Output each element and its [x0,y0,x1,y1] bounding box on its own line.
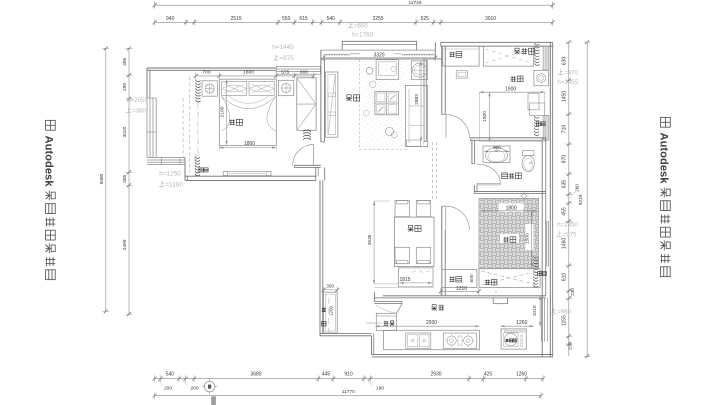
svg-text:230: 230 [570,288,575,296]
svg-text:3010: 3010 [485,16,496,22]
svg-text:1500: 1500 [525,233,531,244]
svg-text:2515: 2515 [231,16,242,22]
svg-text:1800: 1800 [243,70,254,76]
svg-text:1260: 1260 [516,320,527,326]
svg-text:=975: =975 [563,231,577,238]
svg-text:490: 490 [122,83,128,91]
svg-text:1450: 1450 [561,91,567,102]
svg-text:700: 700 [202,70,210,76]
svg-text:11746: 11746 [409,0,422,6]
svg-text:1800: 1800 [244,141,255,147]
svg-text:525: 525 [421,16,430,22]
svg-text:940: 940 [166,16,175,22]
svg-text:h=1450: h=1450 [557,222,578,229]
svg-text:2255: 2255 [372,16,383,22]
svg-text:190: 190 [376,386,384,392]
svg-text:200: 200 [190,386,198,392]
svg-text:870: 870 [561,155,567,164]
svg-text:h=1445: h=1445 [272,44,294,51]
svg-text:615: 615 [299,16,308,22]
svg-text:1260: 1260 [516,371,527,377]
svg-text:230: 230 [568,342,573,350]
svg-text:2635: 2635 [367,234,373,245]
svg-text:800: 800 [493,145,501,150]
svg-text:600: 600 [300,70,308,76]
svg-text:h=2050: h=2050 [127,97,148,104]
svg-text:1800: 1800 [506,205,517,211]
svg-text:540: 540 [166,371,175,377]
svg-text:=1160: =1160 [165,182,183,189]
svg-text:610: 610 [561,273,567,282]
svg-text:h=1250: h=1250 [159,170,181,177]
svg-text:260: 260 [574,184,579,192]
svg-text:445: 445 [322,371,331,377]
svg-text:1210: 1210 [456,286,467,292]
svg-text:2930: 2930 [426,320,437,326]
svg-text:Autodesk: Autodesk [43,136,55,188]
svg-text:1155: 1155 [561,315,567,326]
svg-text:=960: =960 [557,308,571,315]
svg-text:1200: 1200 [329,305,334,316]
svg-text:630: 630 [561,57,567,66]
svg-text:910: 910 [344,371,353,377]
svg-text:Autodesk: Autodesk [658,133,670,185]
svg-text:1500: 1500 [482,111,488,122]
svg-text:h=1455: h=1455 [557,79,578,86]
svg-text:3320: 3320 [373,52,384,58]
svg-text:1900: 1900 [505,86,516,92]
svg-text:=665: =665 [354,23,368,30]
svg-text:200: 200 [164,386,172,392]
svg-text:455: 455 [561,207,567,216]
svg-text:=975: =975 [279,55,294,62]
svg-text:3020: 3020 [122,126,128,137]
svg-text:575: 575 [281,70,289,76]
svg-text:1815: 1815 [399,277,410,283]
svg-text:350: 350 [326,284,334,289]
svg-text:385: 385 [122,174,128,182]
svg-text:=380: =380 [132,108,146,115]
svg-text:550: 550 [282,16,291,22]
svg-text:635: 635 [561,180,567,189]
svg-text:3680: 3680 [250,371,261,377]
svg-text:2883: 2883 [414,94,420,105]
svg-text:1010: 1010 [532,305,538,316]
svg-text:2800: 2800 [194,154,198,162]
svg-text:1460: 1460 [561,238,567,249]
svg-text:4495: 4495 [122,239,128,250]
svg-text:425: 425 [484,371,493,377]
svg-text:2930: 2930 [430,371,441,377]
svg-text:h=1760: h=1760 [352,32,373,39]
svg-text:710: 710 [561,125,567,134]
svg-text:9080: 9080 [99,173,105,184]
svg-text:11770: 11770 [342,389,355,395]
svg-text:600: 600 [469,274,475,282]
svg-text:485: 485 [122,57,128,65]
svg-text:2100: 2100 [219,106,225,117]
svg-text:540: 540 [327,16,336,22]
svg-text:=970: =970 [564,70,578,77]
